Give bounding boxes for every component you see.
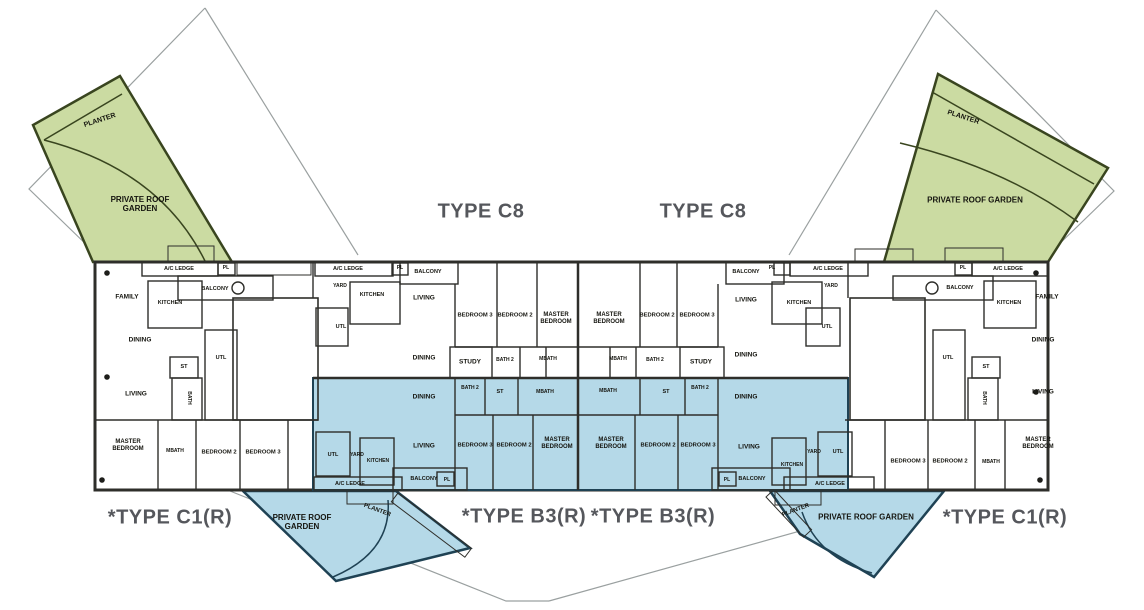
unit-type-label: *TYPE B3(R) [591, 506, 715, 529]
room-label: BATH 2 [646, 358, 664, 364]
room-label: BALCONY [414, 269, 441, 275]
unit-type-label: *TYPE B3(R) [462, 506, 586, 529]
room-label: BEDROOM 2 [932, 459, 967, 466]
room-label: FAMILY [1035, 293, 1058, 300]
unit-type-label: TYPE C8 [660, 201, 747, 224]
room-label: MASTER BEDROOM [540, 312, 571, 326]
room-label: KITCHEN [367, 459, 389, 465]
room-label: BEDROOM 3 [890, 459, 925, 466]
room-label: BALCONY [410, 476, 437, 482]
room-label: BALCONY [946, 285, 973, 291]
room-label: LIVING [735, 296, 757, 303]
floor-plan: PLANTERPRIVATE ROOF GARDENPLANTERPRIVATE… [0, 0, 1144, 610]
room-label: YARD [350, 453, 364, 459]
room-label: UTL [833, 449, 844, 455]
room-label: A/C LEDGE [164, 266, 194, 272]
room-label: LIVING [1032, 388, 1054, 395]
room-label: ST [982, 364, 989, 370]
room-label: UTL [328, 452, 339, 458]
room-label: PRIVATE ROOF GARDEN [927, 195, 1023, 204]
room-label: BALCONY [738, 476, 765, 482]
room-label: YARD [333, 284, 347, 290]
room-label: FAMILY [115, 293, 138, 300]
room-label: KITCHEN [158, 300, 182, 306]
room-label: LIVING [413, 442, 435, 449]
room-label: UTL [216, 355, 227, 361]
room-label: BEDROOM 2 [201, 450, 236, 457]
room-label: BEDROOM 2 [640, 443, 675, 450]
room-label: PRIVATE ROOF GARDEN [818, 512, 914, 521]
room-label: PL [223, 266, 229, 272]
room-label: MASTER BEDROOM [541, 437, 572, 451]
room-label: PLANTER [83, 112, 117, 130]
room-label: BEDROOM 2 [497, 313, 532, 320]
room-label: DINING [735, 351, 758, 358]
room-label: YARD [807, 450, 821, 456]
room-label: YARD [824, 284, 838, 290]
room-label: DINING [1032, 336, 1055, 343]
room-label: A/C LEDGE [333, 266, 363, 272]
room-label: MASTER BEDROOM [595, 437, 626, 451]
room-label: MASTER BEDROOM [1022, 437, 1053, 451]
room-label: ST [180, 364, 187, 370]
room-label: PL [397, 266, 403, 272]
room-label: LIVING [125, 390, 147, 397]
room-label: BEDROOM 2 [496, 443, 531, 450]
unit-type-label: *TYPE C1(R) [108, 507, 232, 530]
room-label: MBATH [599, 389, 617, 395]
room-label: PL [444, 478, 450, 484]
room-label: BATH 2 [691, 386, 709, 392]
room-label: KITCHEN [360, 292, 384, 298]
room-label: ST [662, 389, 669, 395]
room-label: MBATH [539, 357, 557, 363]
room-label: DINING [413, 393, 436, 400]
room-label: BATH [980, 391, 986, 405]
room-label: MBATH [166, 449, 184, 455]
room-label: PL [960, 266, 966, 272]
room-label: A/C LEDGE [335, 481, 365, 487]
room-label: KITCHEN [781, 463, 803, 469]
room-label: BATH [185, 391, 191, 405]
room-label: UTL [822, 324, 833, 330]
room-label: ST [496, 389, 503, 395]
room-label: PRIVATE ROOF GARDEN [111, 195, 170, 213]
room-label: LIVING [413, 294, 435, 301]
room-label: BALCONY [201, 286, 228, 292]
room-label: BEDROOM 3 [680, 443, 715, 450]
room-label: UTL [336, 324, 347, 330]
room-label: BALCONY [732, 269, 759, 275]
room-label: A/C LEDGE [813, 266, 843, 272]
room-label: MBATH [982, 460, 1000, 466]
room-label: MASTER BEDROOM [593, 312, 624, 326]
room-label: DINING [129, 336, 152, 343]
room-label: BEDROOM 3 [679, 313, 714, 320]
room-label: MBATH [536, 390, 554, 396]
room-label: STUDY [690, 358, 712, 365]
room-label: KITCHEN [787, 300, 811, 306]
room-label: BATH 2 [496, 358, 514, 364]
unit-type-label: *TYPE C1(R) [943, 507, 1067, 530]
room-label: A/C LEDGE [993, 266, 1023, 272]
room-label: MBATH [609, 357, 627, 363]
room-label: KITCHEN [997, 300, 1021, 306]
room-label: PRIVATE ROOF GARDEN [273, 513, 332, 531]
room-label: PLANTER [782, 503, 811, 519]
unit-type-label: TYPE C8 [438, 201, 525, 224]
room-label: PL [724, 478, 730, 484]
labels-layer: PLANTERPRIVATE ROOF GARDENPLANTERPRIVATE… [0, 0, 1144, 610]
room-label: DINING [735, 393, 758, 400]
room-label: MASTER BEDROOM [112, 439, 143, 453]
room-label: BATH 2 [461, 386, 479, 392]
room-label: A/C LEDGE [815, 481, 845, 487]
room-label: STUDY [459, 358, 481, 365]
room-label: BEDROOM 3 [245, 450, 280, 457]
room-label: DINING [413, 354, 436, 361]
room-label: PLANTER [946, 109, 980, 127]
room-label: LIVING [738, 443, 760, 450]
room-label: UTL [943, 355, 954, 361]
room-label: BEDROOM 2 [639, 313, 674, 320]
room-label: BEDROOM 3 [457, 313, 492, 320]
room-label: PLANTER [363, 503, 392, 519]
room-label: PL [769, 266, 775, 272]
room-label: BEDROOM 3 [457, 443, 492, 450]
